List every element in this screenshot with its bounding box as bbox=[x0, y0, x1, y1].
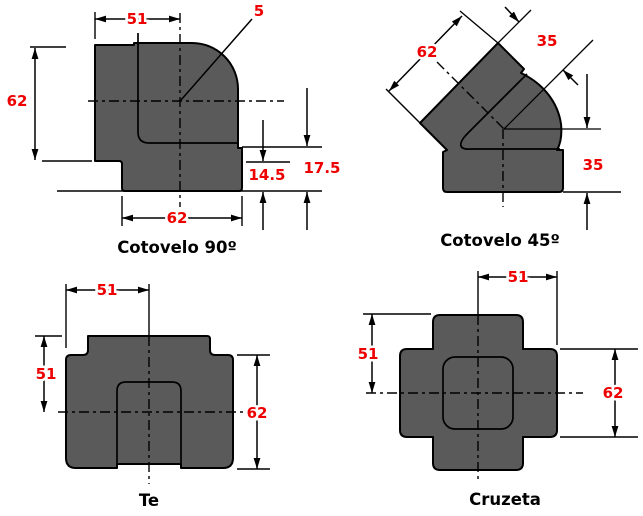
figure-title-te: Te bbox=[139, 491, 159, 510]
drawing-page: 5 51 62 62 14.5 17.5 Cotovelo 90º 6 bbox=[0, 0, 643, 516]
dim-label-corner-radius: 5 bbox=[254, 2, 264, 20]
dim-label-te-top: 51 bbox=[97, 281, 118, 299]
ext-line bbox=[460, 11, 498, 43]
dim-label-mouth-width: 62 bbox=[417, 43, 438, 61]
dim-label-cruzeta-right: 62 bbox=[603, 384, 624, 402]
elbow-45-body bbox=[420, 43, 563, 192]
figure-title-cruzeta: Cruzeta bbox=[469, 490, 541, 509]
dim-label-left-height: 62 bbox=[7, 92, 28, 110]
dim-upper-35-arrow-inner bbox=[563, 70, 578, 85]
dim-label-end-offset: 17.5 bbox=[303, 159, 340, 177]
dim-label-bottom-width: 62 bbox=[167, 209, 188, 227]
figure-title-cotovelo-90: Cotovelo 90º bbox=[117, 238, 237, 257]
dim-label-cruzeta-left: 51 bbox=[358, 345, 379, 363]
ext-line bbox=[386, 89, 420, 123]
figure-cruzeta: 51 51 62 Cruzeta bbox=[358, 268, 638, 509]
mouth-face-extension-line bbox=[498, 10, 531, 43]
dim-label-top-width: 51 bbox=[127, 10, 148, 28]
dim-upper-35-arrow-outer bbox=[505, 7, 519, 22]
dim-label-te-left: 51 bbox=[36, 365, 57, 383]
figure-cotovelo-45: 62 35 35 Cotovelo 45º bbox=[386, 7, 621, 250]
figure-cotovelo-90: 5 51 62 62 14.5 17.5 Cotovelo 90º bbox=[7, 2, 341, 257]
dim-label-center-to-face-lower: 35 bbox=[583, 156, 604, 174]
technical-drawing-canvas: 5 51 62 62 14.5 17.5 Cotovelo 90º 6 bbox=[0, 0, 643, 516]
dim-label-cruzeta-top: 51 bbox=[508, 268, 529, 286]
figure-title-cotovelo-45: Cotovelo 45º bbox=[440, 231, 560, 250]
dim-label-socket-offset: 14.5 bbox=[248, 166, 285, 184]
figure-te: 51 51 62 Te bbox=[35, 281, 270, 510]
elbow-90-body bbox=[95, 43, 242, 191]
dim-label-te-right: 62 bbox=[247, 404, 268, 422]
dim-label-center-to-face-upper: 35 bbox=[537, 32, 558, 50]
